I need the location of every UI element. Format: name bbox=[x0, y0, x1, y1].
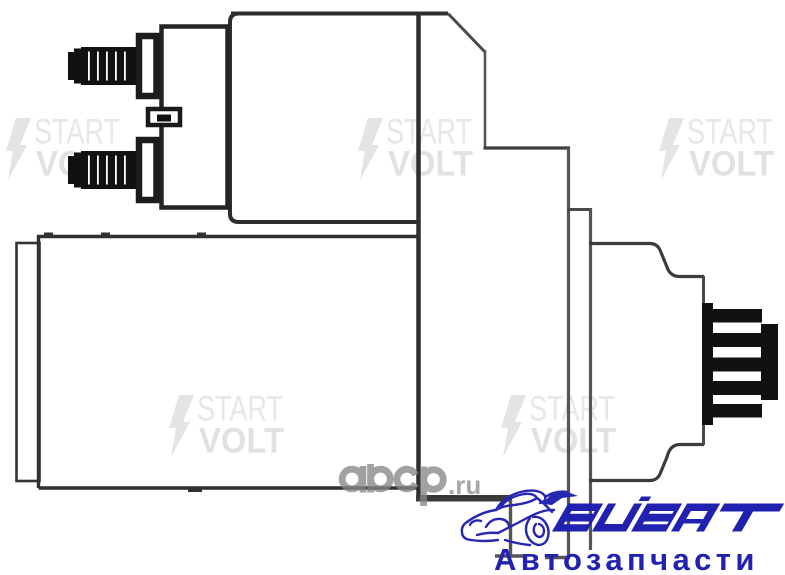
svg-text:VOLT: VOLT bbox=[689, 145, 774, 184]
svg-text:VOLT: VOLT bbox=[531, 422, 616, 461]
svg-text:VOLT: VOLT bbox=[199, 422, 284, 461]
svg-text:VOLT: VOLT bbox=[388, 145, 473, 184]
svg-text:.ru: .ru bbox=[448, 470, 481, 500]
svg-text:Автозапчасти: Автозапчасти bbox=[494, 542, 759, 575]
